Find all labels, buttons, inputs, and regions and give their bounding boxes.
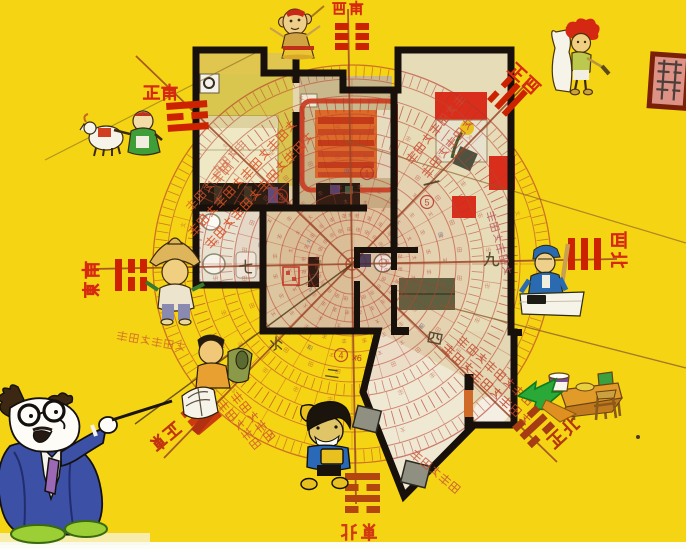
svg-text:x6: x6: [352, 352, 363, 363]
svg-text:4: 4: [338, 351, 343, 361]
svg-text:5: 5: [424, 198, 429, 208]
svg-text:1: 1: [364, 169, 369, 179]
svg-text:2: 2: [278, 192, 283, 202]
